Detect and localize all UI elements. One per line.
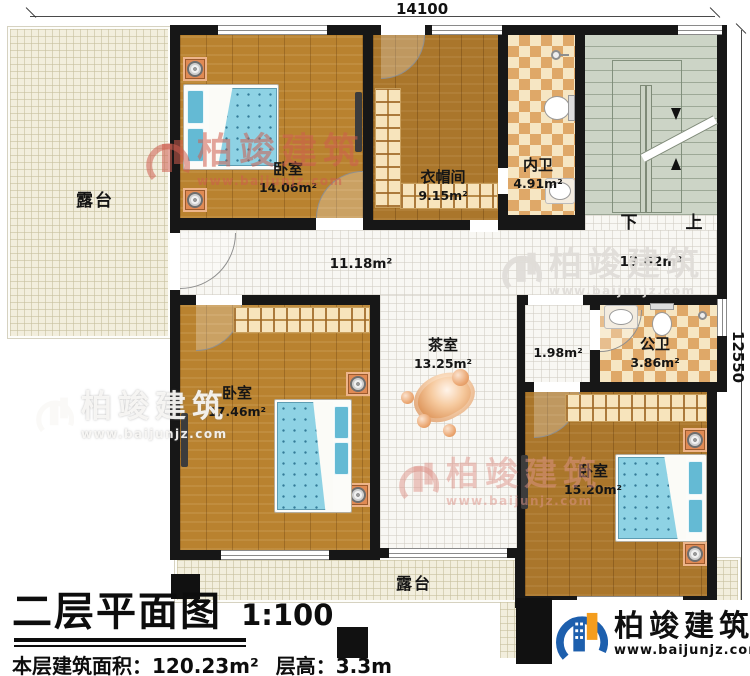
room-area: 3.86m² (630, 355, 679, 371)
nightstand (346, 372, 370, 396)
title-underline-thin (14, 645, 246, 647)
room-area: 17.46m² (208, 404, 266, 420)
room-name: 卧室 (208, 384, 266, 404)
company-name: 柏竣建筑 (614, 610, 750, 643)
toilet-tank (650, 303, 674, 310)
nightstand (183, 57, 207, 81)
window-top-stairs (678, 25, 722, 35)
label-hall-small-area: 1.98m² (533, 345, 582, 361)
toilet-icon (652, 312, 672, 336)
sliding-door-tearoom (389, 548, 507, 558)
room-area: 9.15m² (418, 188, 467, 204)
window-top-cloakroom (432, 25, 502, 35)
floor-height-text: 层高：3.3m (276, 654, 392, 676)
lamp-icon (187, 61, 203, 77)
door-gap-bedroom-left (196, 295, 242, 305)
label-stairs-down: 下 (621, 212, 640, 234)
shower-arm (560, 54, 569, 56)
pillow (187, 128, 204, 162)
label-bedroom-left: 卧室 17.46m² (208, 384, 266, 420)
window-top-bedroom (218, 25, 327, 35)
top-dimension-label: 14100 (396, 0, 448, 18)
pillow (334, 442, 349, 475)
door-gap-cloakroom-bottom (470, 220, 498, 232)
room-name: 茶室 (414, 336, 472, 356)
label-terrace-top-left: 露台 (76, 190, 114, 212)
floor-area-text: 本层建筑面积：120.23m² (12, 654, 259, 676)
tv-icon (355, 92, 362, 152)
toilet-tank (568, 95, 575, 121)
title-underline-thick (14, 638, 246, 642)
label-tearoom: 茶室 13.25m² (414, 336, 472, 372)
floor-stats: 本层建筑面积：120.23m² 层高：3.3m (12, 650, 392, 676)
lamp-icon (350, 376, 366, 392)
door-gap-bath-public (590, 310, 600, 350)
pillow (688, 499, 703, 533)
pillow (187, 90, 204, 124)
window-bottom-bedroom-left (221, 550, 329, 560)
room-name: 衣帽间 (418, 168, 467, 188)
toilet-icon (544, 96, 570, 120)
door-gap-bath-inner (498, 168, 508, 194)
right-dimension-label: 12550 (729, 331, 747, 383)
room-name: 内卫 (513, 156, 562, 176)
nightstand (183, 188, 207, 212)
nightstand (683, 542, 707, 566)
lamp-icon (687, 432, 703, 448)
title-block: 二层平面图 1:100 (12, 592, 333, 632)
stairs-arrow-up-icon (671, 158, 681, 170)
pillar (516, 598, 552, 664)
logo-panel: 柏竣建筑 www.baijunjz.com (552, 600, 750, 676)
tearoom-floor (380, 295, 517, 548)
company-logo-icon (556, 606, 608, 668)
company-url: www.baijunjz.com (614, 643, 750, 658)
label-hallway-area: 11.18m² (330, 256, 393, 274)
closet-hangers (375, 88, 401, 208)
right-dimension-line (741, 30, 742, 614)
room-name: 卧室 (259, 160, 317, 180)
label-bath-inner: 内卫 4.91m² (513, 156, 562, 192)
label-terrace-bottom: 露台 (396, 574, 432, 595)
label-cloakroom: 衣帽间 9.15m² (418, 168, 467, 204)
terrace-top-left-floor (8, 27, 170, 338)
label-bath-public: 公卫 3.86m² (630, 335, 679, 371)
top-dimension-line (30, 16, 715, 17)
door-gap-hallway-terrace (170, 233, 180, 290)
door-gap-hall-small (528, 295, 583, 305)
shower-icon (698, 311, 707, 320)
room-name: 卧室 (564, 462, 622, 482)
pillow (688, 461, 703, 495)
label-stairs-up: 上 (686, 212, 705, 234)
pebble-decor (443, 424, 456, 437)
hall-small-floor (525, 305, 590, 382)
pillow (334, 406, 349, 439)
sink-basin-icon (609, 309, 633, 325)
wardrobe-hangers (233, 307, 370, 333)
nightstand (683, 428, 707, 452)
plan-scale: 1:100 (241, 598, 333, 632)
tv-icon (181, 413, 188, 467)
lamp-icon (687, 546, 703, 562)
door-gap-bedroom-right (534, 382, 580, 392)
lamp-icon (350, 487, 366, 503)
room-area: 4.91m² (513, 176, 562, 192)
stairs-arrow-down-icon (671, 108, 681, 120)
lamp-icon (187, 192, 203, 208)
door-gap-bedroom-top (316, 218, 363, 230)
pebble-decor (401, 391, 414, 404)
window-right-bath-public (717, 299, 727, 336)
tv-icon (521, 455, 528, 509)
floor-plan-canvas: 14100 12550 (0, 0, 750, 676)
label-bedroom-top: 卧室 14.06m² (259, 160, 317, 196)
label-stair-hall-area: 13.62m² (620, 254, 683, 272)
room-area: 13.25m² (414, 356, 472, 372)
door-gap-cloakroom-top (381, 25, 425, 35)
room-name: 公卫 (630, 335, 679, 355)
room-area: 15.20m² (564, 482, 622, 498)
label-bedroom-right: 卧室 15.20m² (564, 462, 622, 498)
room-area: 14.06m² (259, 180, 317, 196)
pebble-decor (417, 414, 431, 428)
plan-title: 二层平面图 (12, 589, 222, 635)
watermark-logo-icon (36, 392, 74, 436)
logo-text-group: 柏竣建筑 www.baijunjz.com (614, 610, 750, 658)
wardrobe-hangers (565, 394, 707, 422)
